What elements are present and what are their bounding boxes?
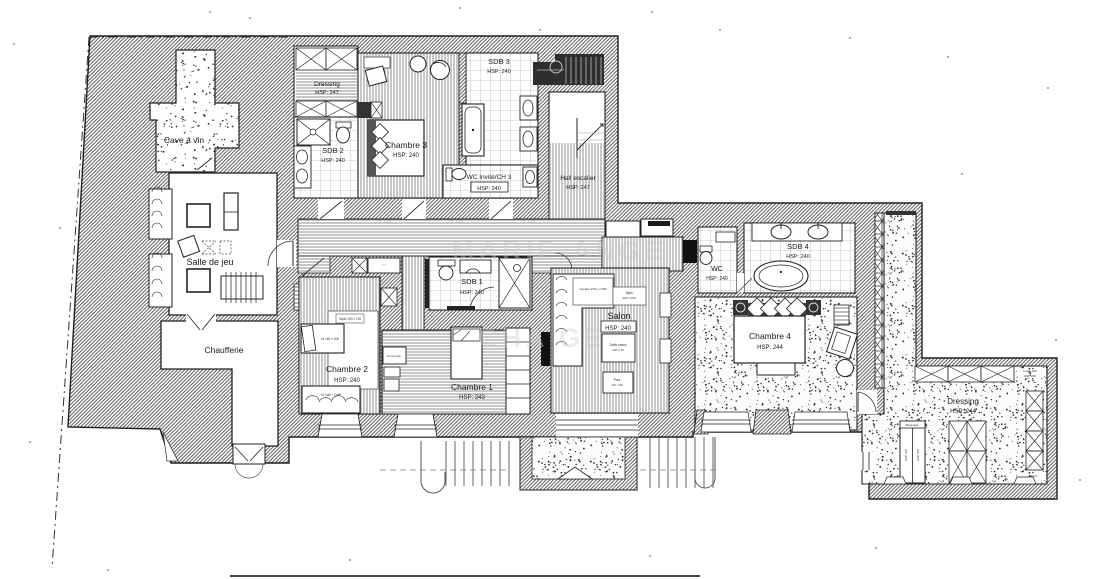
svg-text:WC Invité/CH 3: WC Invité/CH 3 — [467, 174, 512, 181]
svg-text:····: ···· — [381, 262, 386, 267]
svg-text:Chambre 2: Chambre 2 — [326, 364, 368, 374]
svg-text:HSP: 240: HSP: 240 — [321, 158, 345, 164]
svg-text:Tapis: Tapis — [625, 291, 633, 295]
svg-text:Chambre 3: Chambre 3 — [385, 140, 427, 150]
svg-text:Linge 190: Linge 190 — [1023, 369, 1037, 373]
svg-text:140 x 70: 140 x 70 — [612, 348, 624, 352]
svg-text:Canapé 276L x HSP: Canapé 276L x HSP — [579, 287, 606, 291]
svg-text:HSP: 244: HSP: 244 — [757, 345, 783, 351]
svg-text:Tapis 190 x 190: Tapis 190 x 190 — [339, 317, 362, 321]
svg-text:Salle de jeu: Salle de jeu — [186, 257, 233, 267]
svg-text:HSP: 247: HSP: 247 — [315, 90, 339, 96]
svg-text:Commode: Commode — [387, 354, 401, 358]
svg-text:HSP: 240: HSP: 240 — [477, 186, 501, 192]
svg-text:Dressing: Dressing — [314, 81, 340, 88]
svg-text:Chambre 1: Chambre 1 — [451, 382, 493, 392]
svg-text:HSP: 240: HSP: 240 — [786, 254, 810, 260]
svg-text:Table basse: Table basse — [609, 343, 626, 347]
svg-text:SDB 2: SDB 2 — [322, 146, 344, 155]
svg-text:HSP: 240: HSP: 240 — [706, 276, 728, 282]
svg-text:SDB 3: SDB 3 — [488, 57, 510, 66]
svg-text:HSP: 240: HSP: 240 — [605, 326, 631, 332]
svg-text:WC: WC — [711, 266, 723, 273]
svg-text:HSP: 240: HSP: 240 — [487, 69, 511, 75]
svg-text:HSP: 247: HSP: 247 — [566, 185, 590, 191]
svg-text:Le Vail + CMP: Le Vail + CMP — [321, 393, 341, 397]
svg-text:SDB 4: SDB 4 — [787, 242, 809, 251]
svg-text:HSP: 244: HSP: 244 — [950, 409, 976, 415]
svg-text:HSP 240: HSP 240 — [904, 449, 908, 461]
svg-text:Chambre 4: Chambre 4 — [749, 331, 791, 341]
svg-text:Cave à vin: Cave à vin — [164, 135, 204, 145]
svg-text:HSP 240: HSP 240 — [1024, 374, 1036, 378]
svg-text:Hall escalier: Hall escalier — [560, 175, 596, 182]
svg-text:Salon: Salon — [607, 311, 630, 321]
svg-text:Chaufferie: Chaufferie — [204, 345, 243, 355]
svg-text:HSP: 240: HSP: 240 — [460, 290, 484, 296]
svg-text:HSP: 240: HSP: 240 — [393, 153, 419, 159]
svg-text:MARIE-ANGE: MARIE-ANGE — [452, 236, 666, 266]
svg-text:Lit 160 x 200: Lit 160 x 200 — [321, 337, 339, 341]
svg-text:HSP 240: HSP 240 — [916, 449, 920, 461]
svg-text:110 x 80: 110 x 80 — [611, 383, 623, 387]
svg-text:CHA GE: CHA GE — [478, 323, 606, 353]
svg-text:Banquette: Banquette — [906, 423, 919, 427]
svg-text:HSP: 240: HSP: 240 — [334, 378, 360, 384]
svg-text:300 x 200: 300 x 200 — [622, 296, 636, 300]
svg-text:HSP: 243: HSP: 243 — [459, 395, 485, 401]
svg-text:Pouf: Pouf — [614, 378, 621, 382]
svg-text:Dressing: Dressing — [947, 397, 979, 406]
svg-text:SDB 1: SDB 1 — [461, 277, 483, 286]
